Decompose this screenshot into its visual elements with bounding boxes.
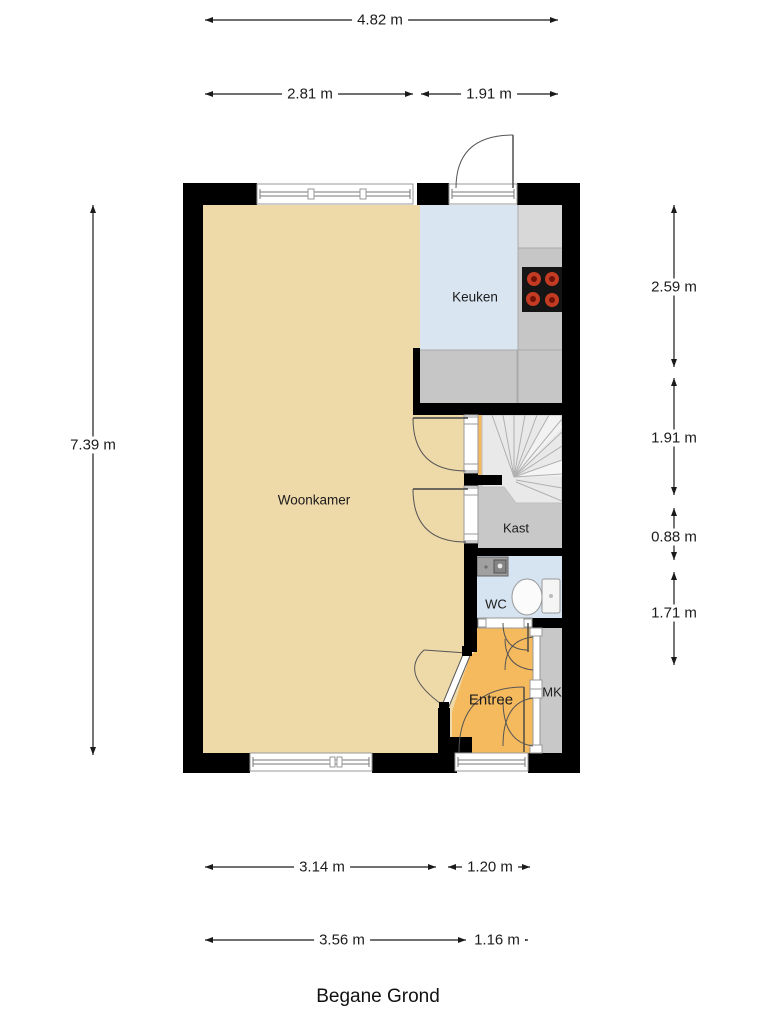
window-bottom (250, 753, 372, 771)
kitchen-door-threshold (449, 184, 517, 204)
dimension-label-top-right: 1.91 m (461, 86, 517, 103)
stove-icon (522, 267, 562, 312)
room-label-keuken: Keuken (452, 290, 498, 305)
dimension-label-right-1: 2.59 m (646, 279, 702, 296)
dimension-label-bottom-3: 3.56 m (314, 932, 370, 949)
dimension-label-bottom-1: 3.14 m (294, 859, 350, 876)
floor-title: Begane Grond (316, 986, 440, 1008)
dimension-label-top-left: 2.81 m (282, 86, 338, 103)
dimension-label-bottom-4: 1.16 m (469, 932, 525, 949)
dimension-label-left-overall: 7.39 m (65, 437, 121, 454)
toilet-icon (512, 579, 560, 615)
dimension-label-bottom-2: 1.20 m (462, 859, 518, 876)
room-label-mk: MK (542, 685, 562, 700)
dimension-label-right-4: 1.71 m (646, 605, 702, 622)
room-label-woonkamer: Woonkamer (278, 493, 351, 508)
dimension-label-top-overall: 4.82 m (352, 12, 408, 29)
sink-icon (477, 557, 508, 576)
room-label-kast: Kast (503, 521, 529, 536)
front-door-threshold (455, 753, 528, 771)
floor-plan-canvas: Woonkamer Keuken Kast WC Entree MK 4.82 … (0, 0, 768, 1024)
floor-plan (0, 0, 768, 1024)
window-top (257, 184, 413, 204)
room-label-entree: Entree (469, 692, 513, 709)
dimension-label-right-3: 0.88 m (646, 529, 702, 546)
dimension-label-right-2: 1.91 m (646, 430, 702, 447)
room-label-wc: WC (485, 597, 507, 612)
